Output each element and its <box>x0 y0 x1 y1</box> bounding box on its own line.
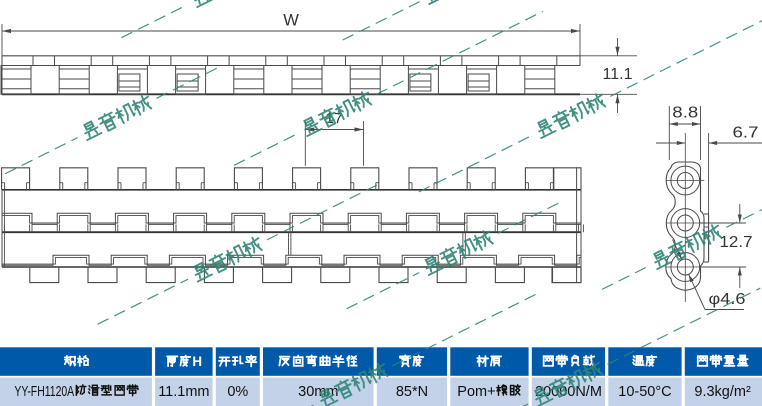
svg-text:12.7: 12.7 <box>720 234 753 251</box>
svg-text:6.7: 6.7 <box>733 125 759 142</box>
svg-text:0%: 0% <box>227 384 248 400</box>
svg-text:Pom+: Pom+ <box>457 384 495 400</box>
svg-text:8.8: 8.8 <box>672 105 698 122</box>
svg-text:YY-FH1120A: YY-FH1120A <box>14 384 74 400</box>
svg-text:30mm: 30mm <box>298 384 338 400</box>
svg-text:W: W <box>283 11 299 29</box>
svg-text:11.1: 11.1 <box>603 66 633 83</box>
svg-text:9.3kg/m²: 9.3kg/m² <box>694 384 751 400</box>
svg-text:11.1mm: 11.1mm <box>158 384 209 400</box>
svg-text:H: H <box>192 354 202 369</box>
svg-text:10-50°C: 10-50°C <box>618 384 671 400</box>
svg-text:85*N: 85*N <box>396 384 428 400</box>
